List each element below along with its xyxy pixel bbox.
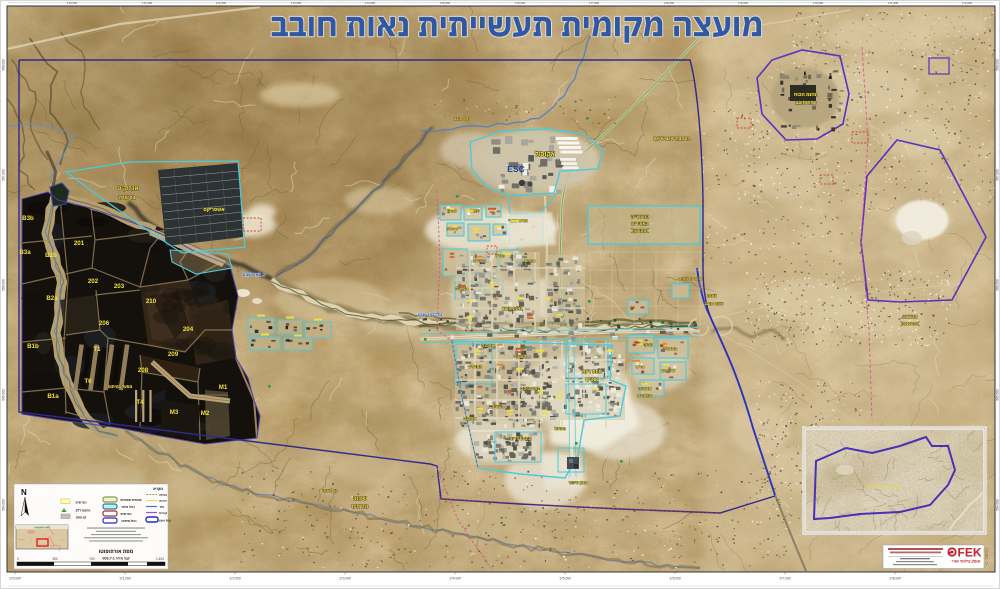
svg-text:201: 201 (74, 240, 85, 247)
svg-text:173.000: 173.000 (339, 577, 351, 581)
svg-text:172.000: 172.000 (229, 577, 241, 581)
svg-text:M3: M3 (170, 409, 179, 416)
svg-text:565.000: 565.000 (2, 389, 6, 401)
svg-text:177.500: 177.500 (589, 1, 600, 5)
svg-text:B1b: B1b (27, 343, 39, 350)
svg-text:0: 0 (17, 557, 19, 561)
svg-text:171.500: 171.500 (142, 1, 153, 5)
svg-text:565.000: 565.000 (996, 389, 1000, 401)
svg-text:B3b: B3b (22, 215, 34, 222)
svg-text:170.500: 170.500 (813, 1, 824, 5)
svg-text:176.000: 176.000 (669, 577, 681, 581)
svg-text:170.000: 170.000 (9, 577, 21, 581)
svg-text:175.000: 175.000 (559, 577, 571, 581)
svg-text:175.500: 175.500 (440, 1, 451, 5)
svg-text:170.500: 170.500 (67, 1, 78, 5)
svg-text:M2: M2 (201, 410, 210, 417)
svg-text:350: 350 (52, 557, 58, 561)
svg-text:174.000: 174.000 (449, 577, 461, 581)
svg-text:B3a: B3a (19, 249, 31, 256)
svg-text:FEK: FEK (958, 546, 982, 560)
svg-text:178.500: 178.500 (664, 1, 675, 5)
svg-text:178.000: 178.000 (889, 577, 901, 581)
svg-text:T4: T4 (136, 399, 144, 406)
svg-text:564.000: 564.000 (996, 499, 1000, 511)
svg-text:202: 202 (88, 278, 99, 285)
svg-text:568.000: 568.000 (2, 59, 6, 71)
svg-text:700: 700 (89, 557, 95, 561)
svg-text:B2a: B2a (46, 295, 58, 302)
svg-text:171.500: 171.500 (888, 1, 899, 5)
svg-text:B2b: B2b (45, 252, 57, 259)
svg-text:210: 210 (146, 298, 157, 305)
svg-text:177.000: 177.000 (779, 577, 791, 581)
svg-text:568.000: 568.000 (996, 59, 1000, 71)
svg-text:173.500: 173.500 (291, 1, 302, 5)
svg-text:566.000: 566.000 (996, 279, 1000, 291)
svg-text:C-18021: C-18021 (984, 547, 989, 565)
svg-text:203: 203 (114, 283, 125, 290)
svg-text:179.500: 179.500 (738, 1, 749, 5)
svg-text:567.000: 567.000 (2, 169, 6, 181)
svg-text:B1a: B1a (47, 393, 59, 400)
svg-text:T1: T1 (93, 346, 101, 353)
svg-text:172.500: 172.500 (216, 1, 227, 5)
svg-text:204: 204 (183, 326, 194, 333)
svg-text:208: 208 (138, 367, 149, 374)
svg-text:206: 206 (99, 320, 110, 327)
svg-text:171.000: 171.000 (119, 577, 131, 581)
svg-text:1,400: 1,400 (156, 557, 164, 561)
svg-text:M1: M1 (219, 384, 228, 391)
svg-text:174.500: 174.500 (365, 1, 376, 5)
svg-text:N: N (21, 488, 27, 497)
svg-text:176.500: 176.500 (515, 1, 526, 5)
svg-text:564.000: 564.000 (2, 499, 6, 511)
svg-text:ESC: ESC (507, 164, 524, 174)
svg-text:567.000: 567.000 (996, 169, 1000, 181)
svg-text:T6: T6 (84, 378, 92, 385)
svg-text:172.500: 172.500 (962, 1, 973, 5)
svg-text:209: 209 (168, 351, 179, 358)
svg-text:566.000: 566.000 (2, 279, 6, 291)
